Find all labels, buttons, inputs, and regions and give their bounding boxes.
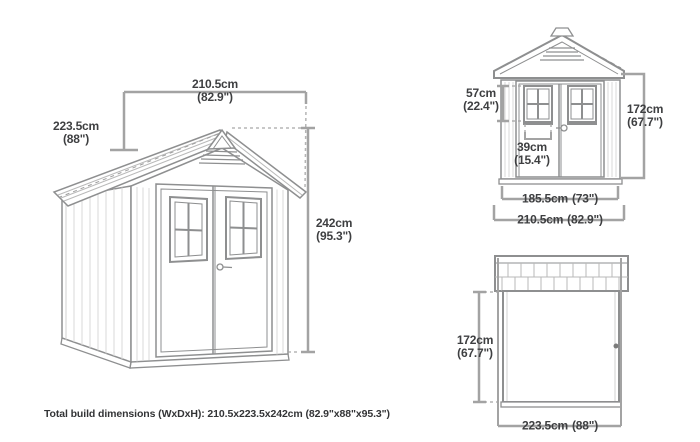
dimension-inch-value: (82.9") (197, 91, 233, 104)
front-door-height-dimension: 172cm (67.7") (627, 103, 663, 129)
dimension-cm-value: 223.5cm (522, 420, 568, 433)
front-door-window-right (567, 86, 597, 124)
front-window-width-dimension: 39cm (15.4") (514, 141, 550, 167)
dimension-inch-value: (73") (572, 193, 598, 206)
side-roof (495, 256, 628, 291)
front-inner-width-dimension: 185.5cm (73") (522, 193, 598, 206)
side-wall (503, 291, 619, 402)
front-door-window-left (523, 86, 553, 124)
dimension-inch-value: (22.4") (463, 100, 499, 113)
dimension-inch-value: (15.4") (514, 154, 550, 167)
front-roof (494, 28, 624, 78)
side-overall-depth-dimension: 223.5cm (88") (522, 420, 598, 433)
iso-depth-dimension: 223.5cm (88") (53, 120, 99, 146)
side-elevation-drawing (473, 256, 628, 426)
dimension-cm-value: 185.5cm (522, 193, 568, 206)
iso-width-dimension: 210.5cm (82.9") (192, 78, 238, 104)
dimension-inch-value: (67.7") (627, 116, 663, 129)
dimension-inch-value: (88") (63, 133, 89, 146)
iso-side-wall (62, 186, 131, 362)
side-hinge-dot (614, 344, 619, 349)
front-elevation-drawing (494, 28, 644, 220)
dimension-inch-value: (88") (572, 420, 598, 433)
front-window-height-dimension: 57cm (22.4") (463, 87, 499, 113)
dimension-inch-value: (95.3") (316, 230, 352, 243)
dimension-inch-value: (67.7") (457, 347, 493, 360)
front-overall-width-dimension: 210.5cm (82.9") (517, 214, 603, 227)
front-ridge-cap (551, 28, 573, 36)
front-base (499, 179, 622, 184)
side-wall-height-dimension: 172cm (67.7") (457, 334, 493, 360)
shed-dimensions-diagram: 210.5cm (82.9") 223.5cm (88") 242cm (95.… (0, 0, 700, 442)
dimension-inch-value: (82.9") (567, 214, 603, 227)
dimension-cm-value: 210.5cm (517, 214, 563, 227)
side-base (501, 402, 621, 407)
total-build-dimensions-caption: Total build dimensions (WxDxH): 210.5x22… (44, 408, 390, 420)
iso-height-dimension: 242cm (95.3") (316, 217, 352, 243)
iso-double-doors (156, 184, 272, 357)
